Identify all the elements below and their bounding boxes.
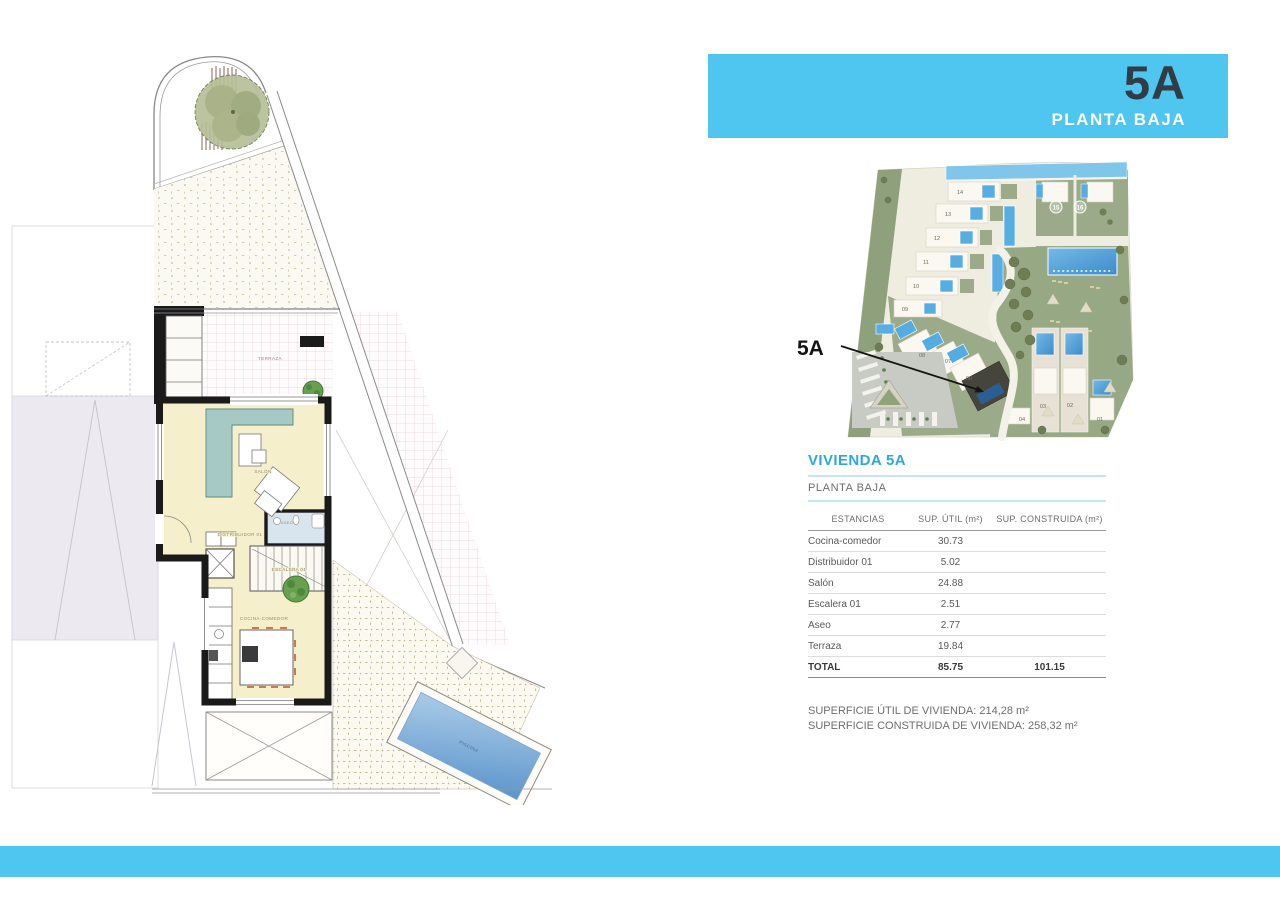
sheet-header: 5A PLANTA BAJA	[708, 54, 1228, 138]
terrace-planter	[300, 336, 324, 347]
svg-text:03: 03	[1040, 404, 1046, 410]
table-row: Distribuidor 01 5.02	[808, 552, 1106, 573]
svg-text:07: 07	[945, 359, 951, 365]
distribuidor-label: DISTRIBUIDOR 01	[218, 532, 263, 537]
top-pools-strip	[946, 162, 1127, 180]
col-header-estancias: ESTANCIAS	[808, 507, 908, 531]
pergola	[206, 712, 332, 780]
details-panel: VIVIENDA 5A PLANTA BAJA ESTANCIAS SUP. Ú…	[808, 452, 1106, 678]
col-header-construida: SUP. CONSTRUIDA (m²)	[993, 507, 1106, 531]
svg-text:13: 13	[945, 212, 951, 218]
svg-text:01: 01	[1097, 417, 1103, 423]
table-row: Terraza 19.84	[808, 636, 1106, 657]
table-row: Cocina-comedor 30.73	[808, 531, 1106, 552]
site-unit-15: 15	[1053, 206, 1060, 212]
svg-text:02: 02	[1067, 403, 1073, 409]
svg-text:10: 10	[913, 284, 919, 290]
terrace: TERRAZA	[154, 306, 340, 404]
panel-title: VIVIENDA 5A	[808, 452, 1106, 469]
divider	[808, 475, 1106, 477]
callout-label: 5A	[797, 337, 824, 360]
brochure-page: PISCINA TERRAZA	[0, 0, 1280, 902]
footer-bar	[0, 846, 1280, 877]
terrace-storage	[166, 316, 202, 400]
svg-text:06: 06	[966, 376, 972, 382]
table-row: Escalera 01 2.51	[808, 594, 1106, 615]
salon-label: SALÓN	[254, 468, 271, 474]
aseo-room	[266, 511, 328, 545]
floor-title: PLANTA BAJA	[1051, 110, 1186, 130]
kitchen-counter	[206, 588, 232, 702]
divider	[808, 500, 1106, 502]
kitchen-plant-icon	[283, 576, 309, 602]
svg-text:11: 11	[923, 260, 929, 266]
escalera-label: ESCALERA 01	[272, 567, 307, 572]
building: SALÓN DISTRIBUIDOR 01 ASEO ESCALERA 01 C…	[155, 394, 333, 706]
communal-pool	[1036, 236, 1128, 275]
site-unit-16: 16	[1077, 206, 1084, 212]
svg-text:04: 04	[1019, 417, 1025, 423]
table-total-row: TOTAL 85.75 101.15	[808, 657, 1106, 678]
lift-shaft	[206, 549, 234, 578]
appliance	[209, 650, 218, 661]
floor-plan: PISCINA TERRAZA	[0, 40, 640, 805]
summary-util: SUPERFICIE ÚTIL DE VIVIENDA: 214,28 m²	[808, 704, 1138, 719]
aseo-label: ASEO	[281, 520, 294, 525]
svg-text:09: 09	[902, 307, 908, 313]
surface-summary: SUPERFICIE ÚTIL DE VIVIENDA: 214,28 m² S…	[808, 704, 1138, 734]
table-row: Salón 24.88	[808, 573, 1106, 594]
kitchen-island	[240, 628, 295, 687]
site-plan: 15 16	[795, 160, 1140, 445]
terrace-label: TERRAZA	[258, 356, 282, 361]
col-header-util: SUP. ÚTIL (m²)	[908, 507, 993, 531]
areas-table: ESTANCIAS SUP. ÚTIL (m²) SUP. CONSTRUIDA…	[808, 507, 1106, 678]
cocina-label: COCINA-COMEDOR	[240, 616, 289, 621]
tree-icon	[195, 75, 269, 149]
svg-text:08: 08	[919, 353, 925, 359]
svg-text:14: 14	[957, 190, 963, 196]
parking	[852, 350, 958, 428]
panel-subtitle: PLANTA BAJA	[808, 482, 1106, 494]
table-row: Aseo 2.77	[808, 615, 1106, 636]
summary-construida: SUPERFICIE CONSTRUIDA DE VIVIENDA: 258,3…	[808, 719, 1138, 734]
svg-text:12: 12	[934, 236, 940, 242]
unit-title: 5A	[1124, 58, 1186, 108]
